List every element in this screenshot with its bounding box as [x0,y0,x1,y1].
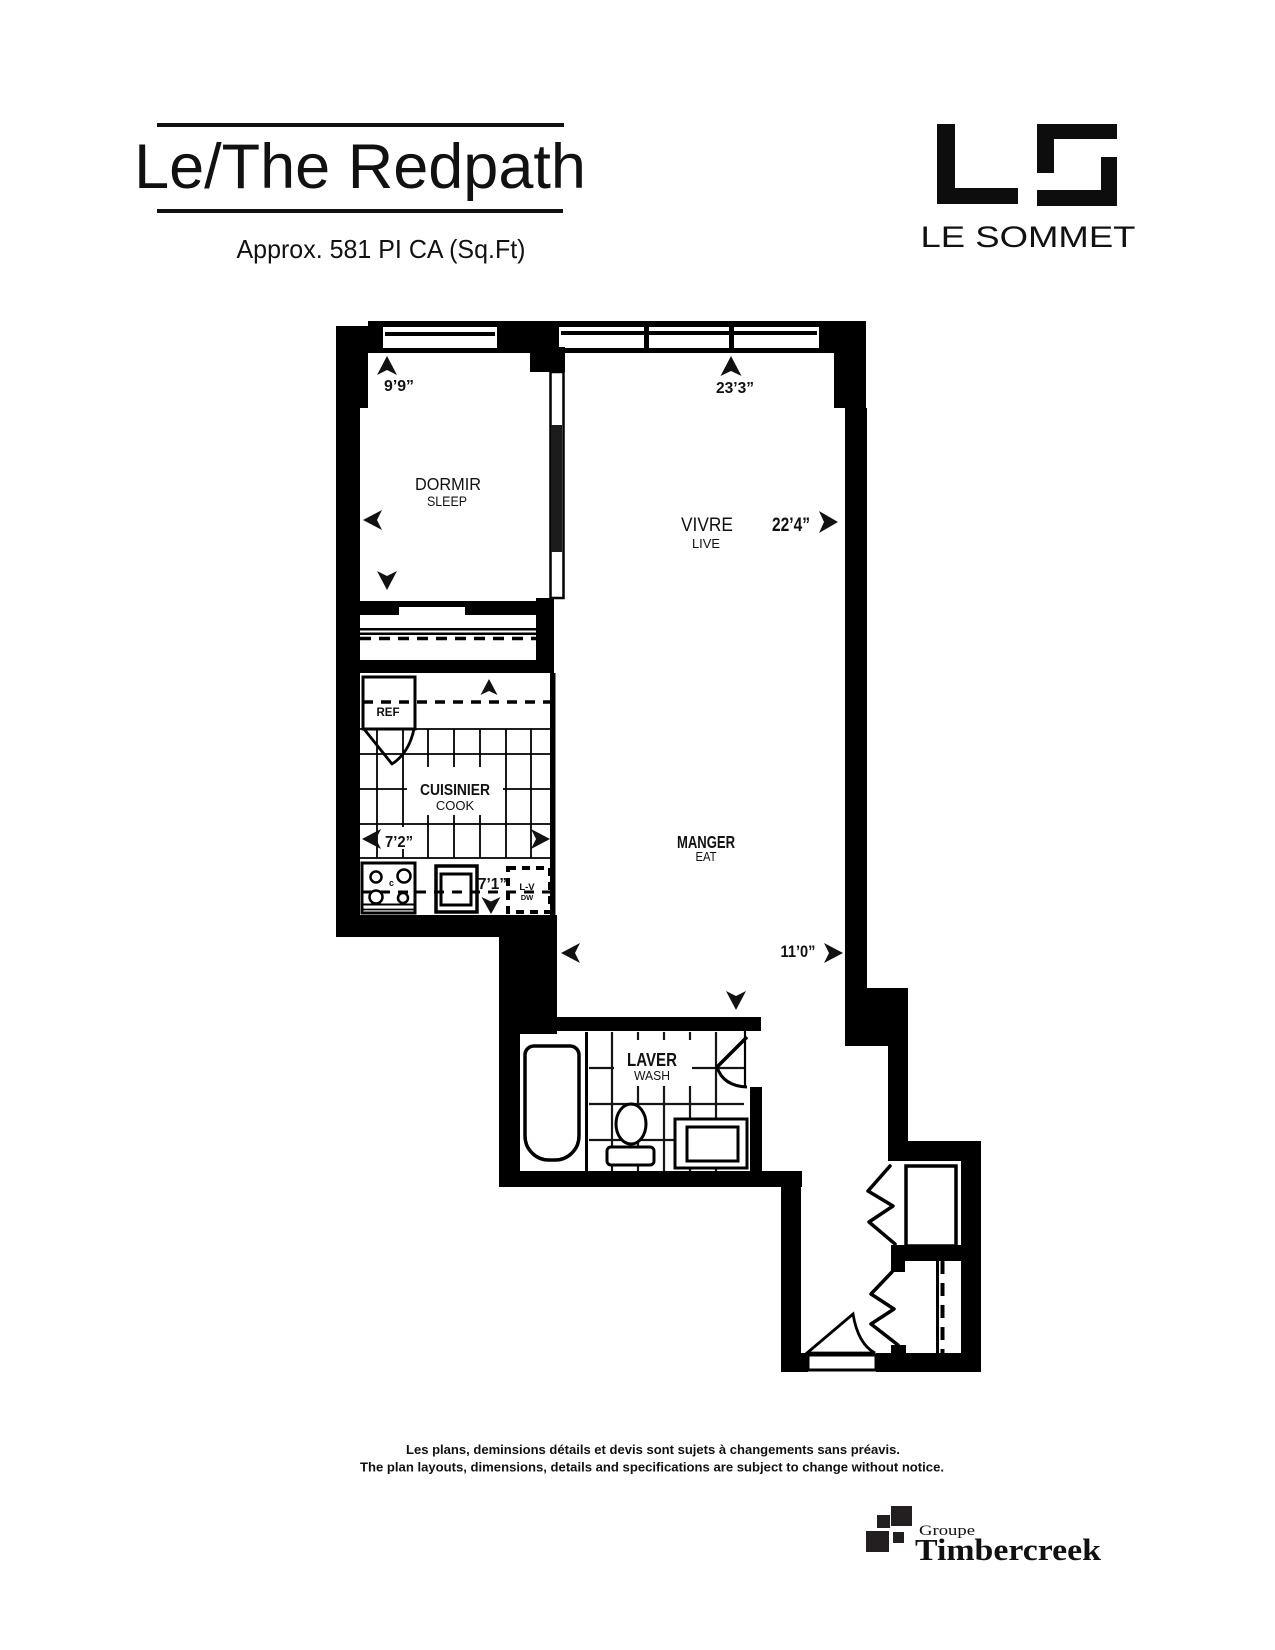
svg-text:CUISINIER: CUISINIER [420,782,490,799]
svg-text:Le/The Redpath: Le/The Redpath [134,132,586,202]
svg-text:VIVRE: VIVRE [681,514,733,536]
svg-text:SLEEP: SLEEP [427,493,467,509]
svg-text:LIVE: LIVE [692,536,720,551]
svg-text:REF: REF [377,707,400,719]
svg-text:The plan layouts, dimensions,: The plan layouts, dimensions, details an… [360,1460,944,1475]
svg-text:7’1”: 7’1” [478,876,507,893]
svg-text:Timbercreek: Timbercreek [915,1532,1102,1567]
svg-text:22’4”: 22’4” [772,515,810,536]
svg-text:LAVER: LAVER [627,1050,677,1070]
svg-text:EAT: EAT [696,850,717,864]
svg-text:Approx. 581 PI CA (Sq.Ft): Approx. 581 PI CA (Sq.Ft) [237,234,526,264]
svg-text:COOK: COOK [436,798,475,813]
svg-text:7’2”: 7’2” [385,834,413,851]
svg-text:DORMIR: DORMIR [415,474,481,494]
svg-text:Les plans, deminsions détails: Les plans, deminsions détails et devis s… [406,1442,900,1457]
svg-text:c: c [389,878,394,888]
svg-text:WASH: WASH [634,1069,670,1083]
svg-text:LE SOMMET: LE SOMMET [921,221,1136,254]
svg-text:23’3”: 23’3” [716,380,754,397]
svg-text:11’0”: 11’0” [781,942,816,961]
svg-text:DW: DW [521,893,534,902]
svg-text:9’9”: 9’9” [384,378,414,395]
svg-text:MANGER: MANGER [677,832,735,852]
